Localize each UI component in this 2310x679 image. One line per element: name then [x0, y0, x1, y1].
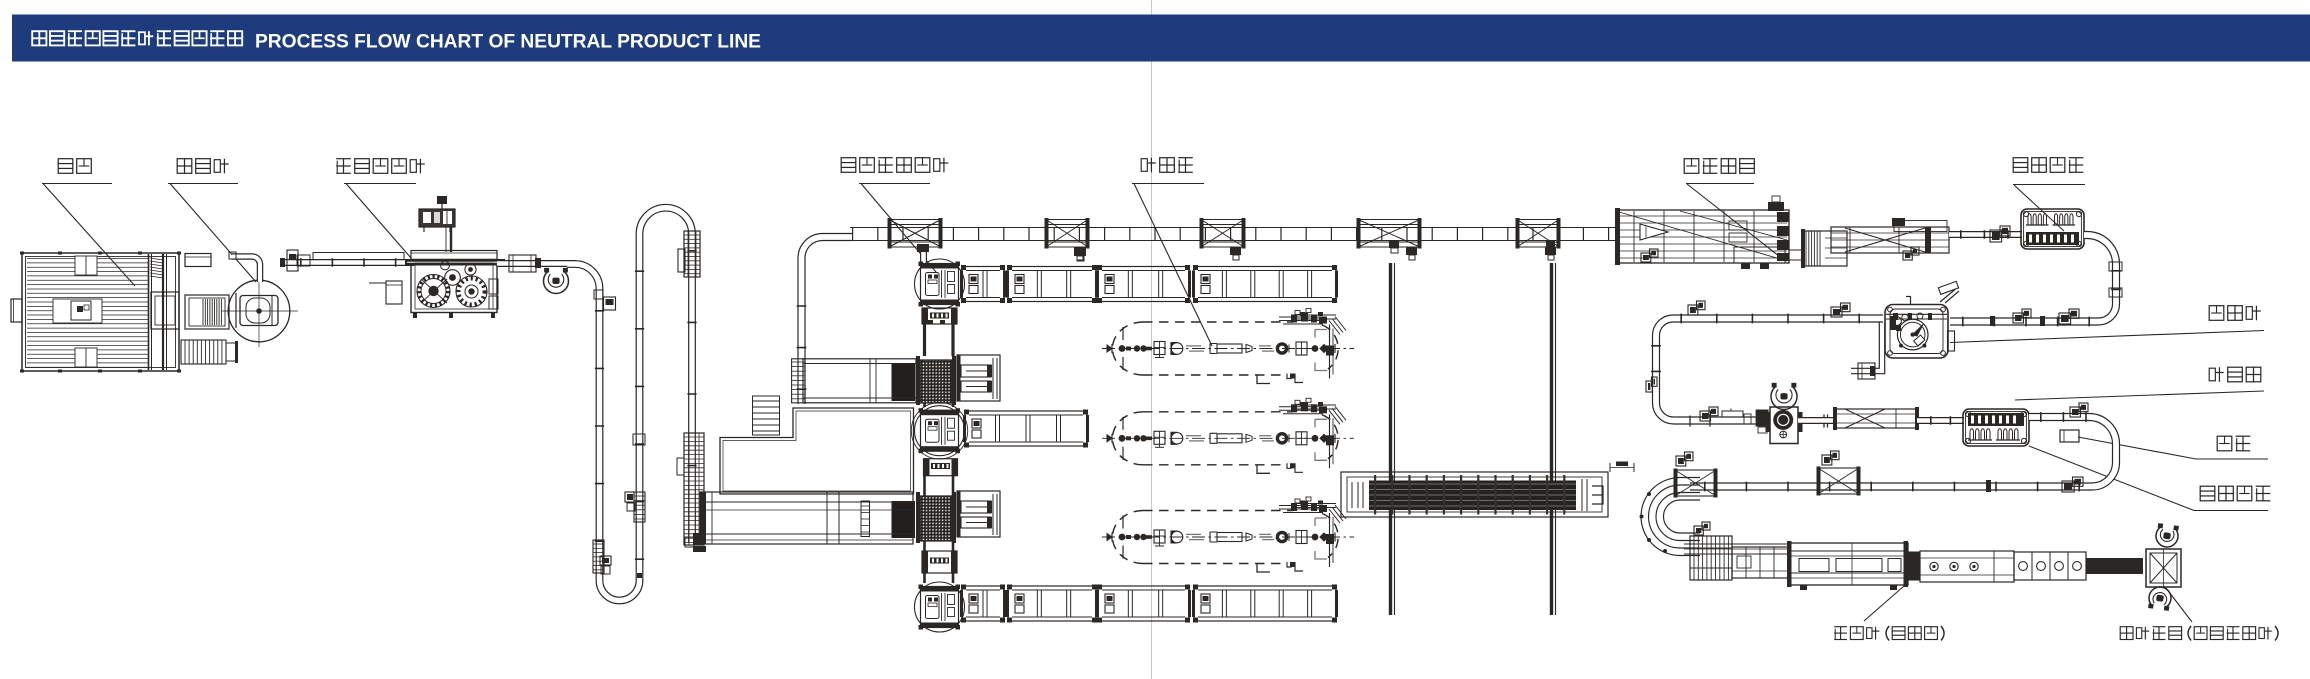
- svg-text:PROCESS FLOW CHART OF NEUTRAL: PROCESS FLOW CHART OF NEUTRAL PRODUCT LI…: [255, 31, 761, 52]
